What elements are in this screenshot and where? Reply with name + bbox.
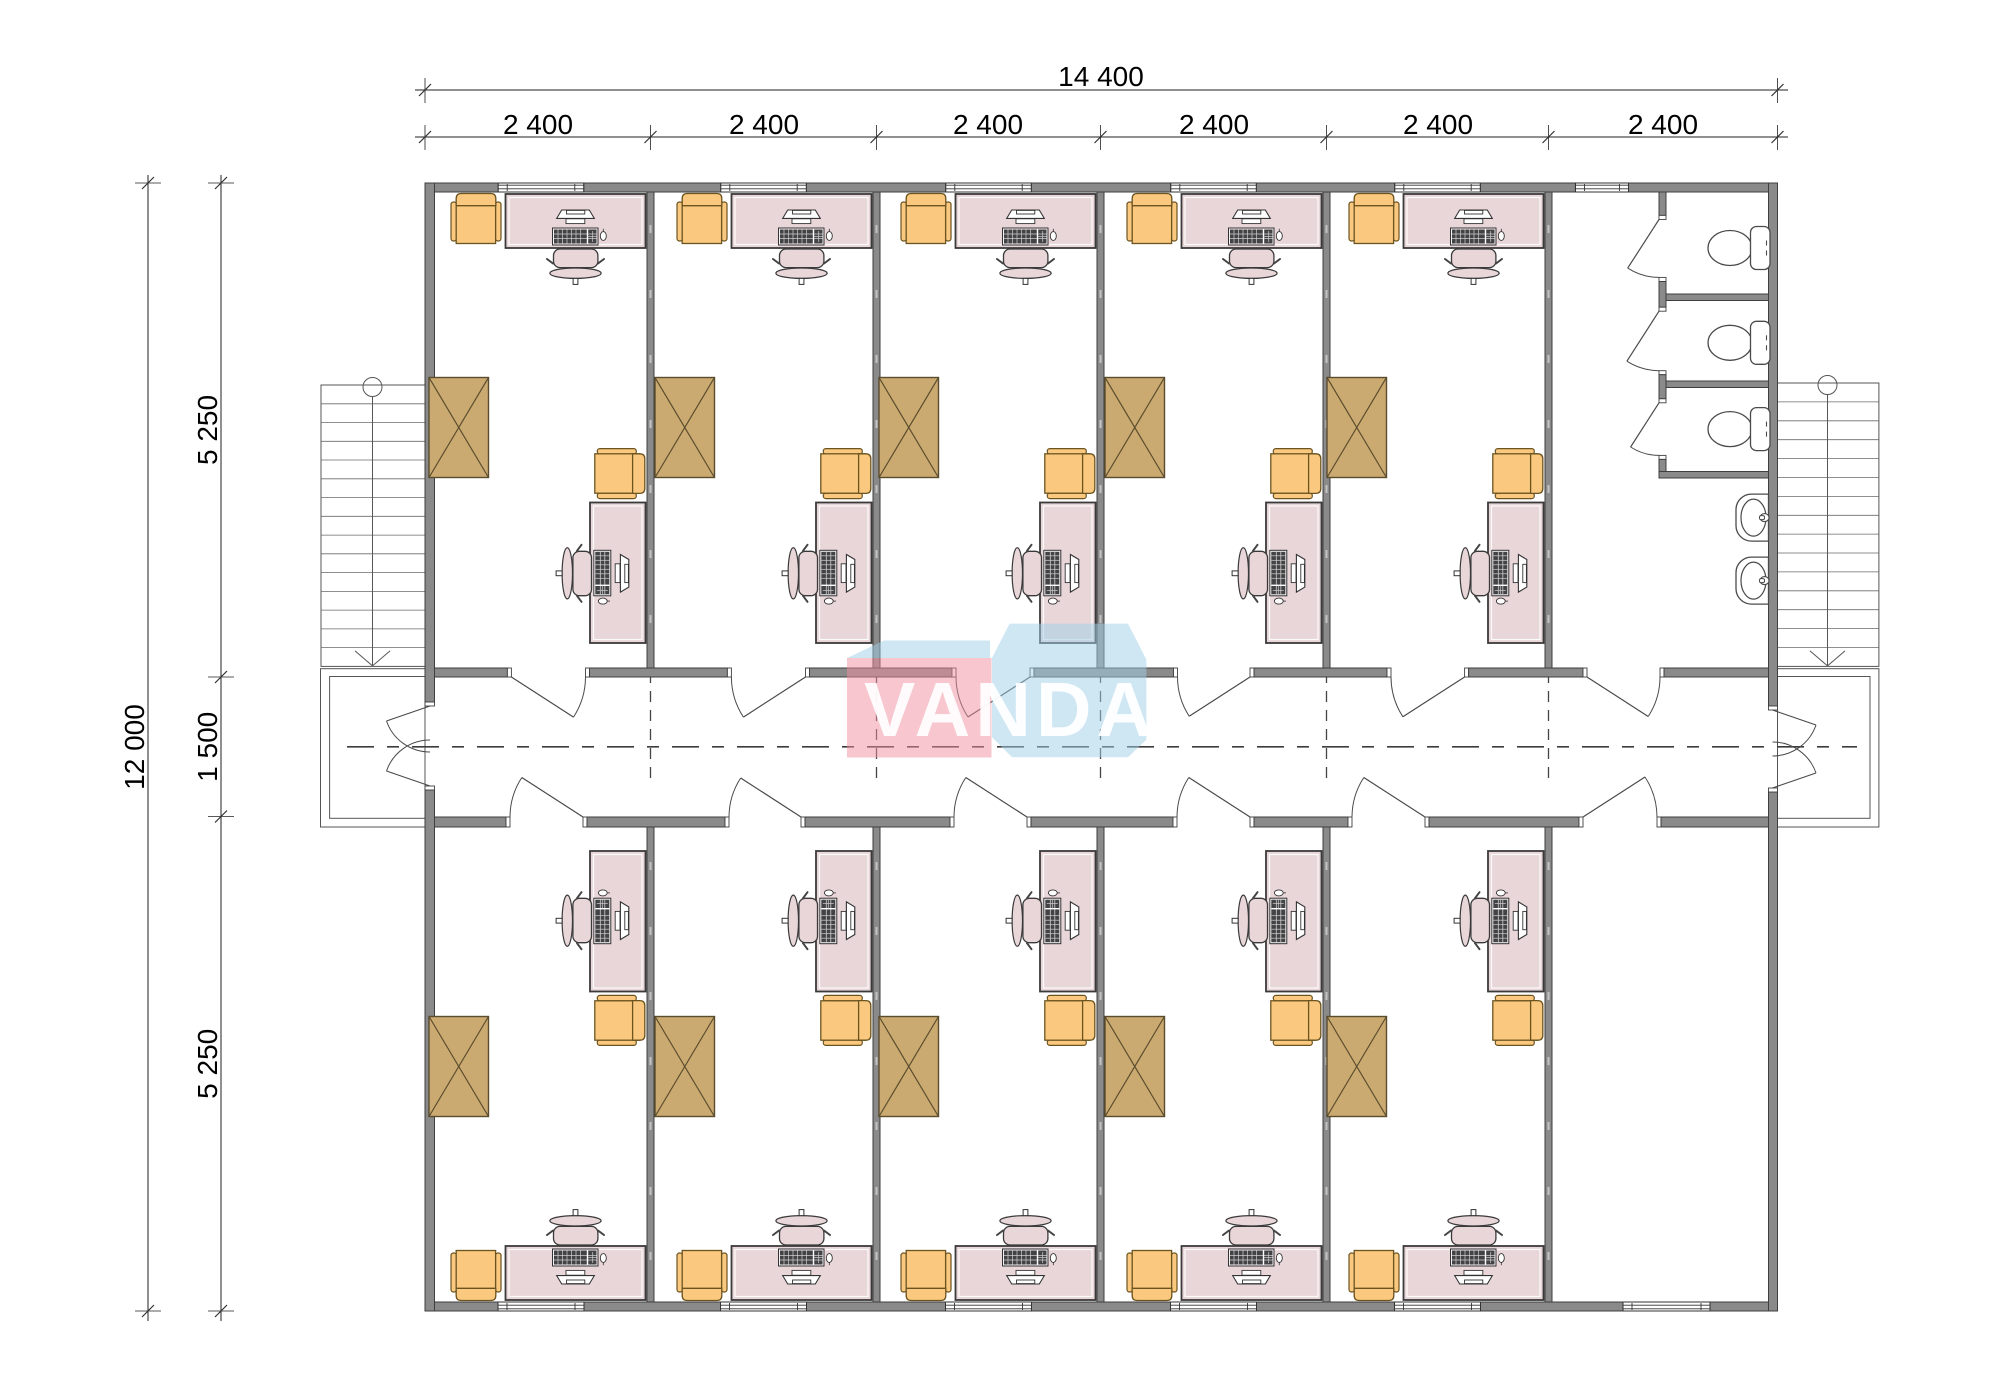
svg-text:2 400: 2 400 bbox=[1628, 109, 1698, 140]
svg-text:2 400: 2 400 bbox=[729, 109, 799, 140]
svg-text:VANDA: VANDA bbox=[864, 667, 1157, 753]
svg-text:1 500: 1 500 bbox=[192, 712, 223, 782]
svg-text:2 400: 2 400 bbox=[953, 109, 1023, 140]
svg-text:2 400: 2 400 bbox=[503, 109, 573, 140]
svg-text:12 000: 12 000 bbox=[119, 704, 150, 790]
svg-text:5 250: 5 250 bbox=[192, 395, 223, 465]
svg-text:5 250: 5 250 bbox=[192, 1029, 223, 1099]
svg-text:2 400: 2 400 bbox=[1403, 109, 1473, 140]
svg-text:14 400: 14 400 bbox=[1058, 61, 1144, 92]
svg-text:2 400: 2 400 bbox=[1179, 109, 1249, 140]
